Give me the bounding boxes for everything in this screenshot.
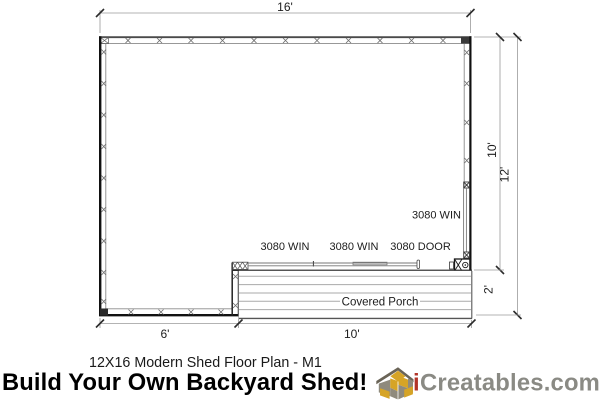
svg-text:Covered Porch: Covered Porch	[342, 297, 419, 309]
svg-text:6': 6'	[161, 327, 170, 341]
svg-text:10': 10'	[344, 327, 360, 341]
svg-text:3080 WIN: 3080 WIN	[330, 241, 379, 253]
svg-text:12X16 Modern Shed Floor Plan -: 12X16 Modern Shed Floor Plan - M1	[89, 355, 322, 371]
svg-text:2': 2'	[482, 285, 496, 294]
svg-text:i: i	[413, 370, 420, 397]
svg-text:Creatables.com: Creatables.com	[420, 370, 600, 397]
svg-text:3080 WIN: 3080 WIN	[412, 210, 461, 222]
svg-text:Build Your Own Backyard Shed!: Build Your Own Backyard Shed!	[2, 370, 367, 396]
svg-text:16': 16'	[277, 0, 293, 14]
svg-text:3080 DOOR: 3080 DOOR	[390, 241, 451, 253]
svg-text:12': 12'	[498, 167, 512, 183]
svg-text:3080 WIN: 3080 WIN	[261, 241, 310, 253]
svg-text:10': 10'	[485, 142, 499, 158]
